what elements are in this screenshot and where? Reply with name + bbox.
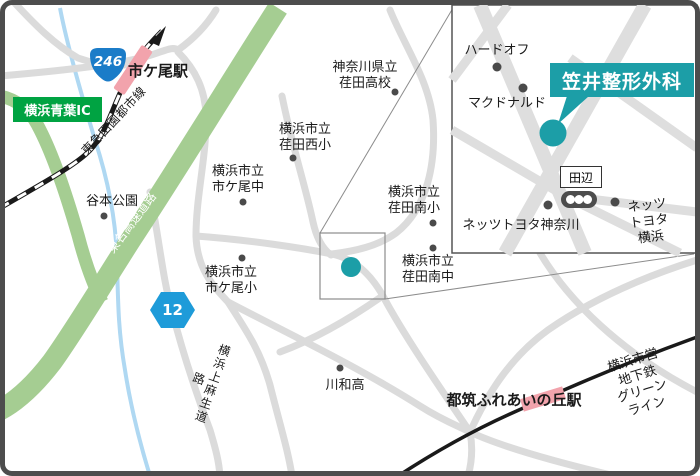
clinic-name-banner: 笠井整形外科: [550, 63, 694, 97]
eda-south-es-label: 横浜市立 荏田南小: [388, 185, 440, 217]
netz-yokohama-label: ネッツトヨタ横浜: [621, 195, 677, 248]
eda-south-es-dot: [430, 220, 437, 227]
eda-south-jhs-label: 横浜市立 荏田南中: [402, 254, 454, 286]
route-246-badge: 246: [85, 44, 131, 86]
place-dots: [101, 89, 437, 372]
eda-south-jhs-dot: [430, 245, 437, 252]
mcdonalds-label: マクドナルド: [468, 96, 546, 112]
tanabe-intersection-label: 田辺: [560, 166, 602, 188]
ichigao-jhs-dot: [240, 199, 247, 206]
route-12-badge: 12: [150, 292, 195, 328]
tsuzuki-station-label: 都筑ふれあいの丘駅: [446, 391, 581, 409]
clinic-location-dot: [341, 257, 361, 277]
hardoff-dot: [493, 63, 502, 72]
ichigao-es-dot: [239, 255, 246, 262]
railway-arrow-icon: [150, 26, 166, 46]
mcdonalds-dot: [519, 84, 528, 93]
access-map: 市ケ尾駅 東急田園都市線 東名高速道路 谷本公園 横浜市立 市ケ尾中 横浜市立 …: [0, 0, 700, 476]
kawawa-hs-dot: [337, 365, 344, 372]
ichigao-es-label: 横浜市立 市ケ尾小: [205, 265, 257, 297]
eda-west-es-dot: [290, 155, 297, 162]
netz-kanagawa-dot: [544, 201, 553, 210]
netz-yokohama-dot: [611, 198, 620, 207]
eda-west-es-label: 横浜市立 荏田西小: [279, 122, 331, 154]
yamoto-park-label: 谷本公園: [86, 194, 138, 210]
eda-hs-label: 神奈川県立 荏田高校: [332, 60, 397, 92]
yamoto-park-dot: [101, 213, 108, 220]
ichigao-jhs-label: 横浜市立 市ケ尾中: [212, 164, 264, 196]
clinic-marker: [540, 120, 567, 147]
kawawa-hs-label: 川和高: [325, 378, 364, 394]
route-12-number: 12: [162, 301, 183, 319]
ichigao-station-label: 市ケ尾駅: [128, 62, 188, 80]
netz-kanagawa-label: ネッツトヨタ神奈川: [462, 218, 579, 234]
yokohama-aoba-ic-badge: 横浜青葉IC: [13, 97, 102, 122]
hardoff-label: ハードオフ: [464, 43, 529, 59]
route-246-number: 246: [94, 54, 122, 76]
traffic-light-icon: [561, 191, 597, 208]
